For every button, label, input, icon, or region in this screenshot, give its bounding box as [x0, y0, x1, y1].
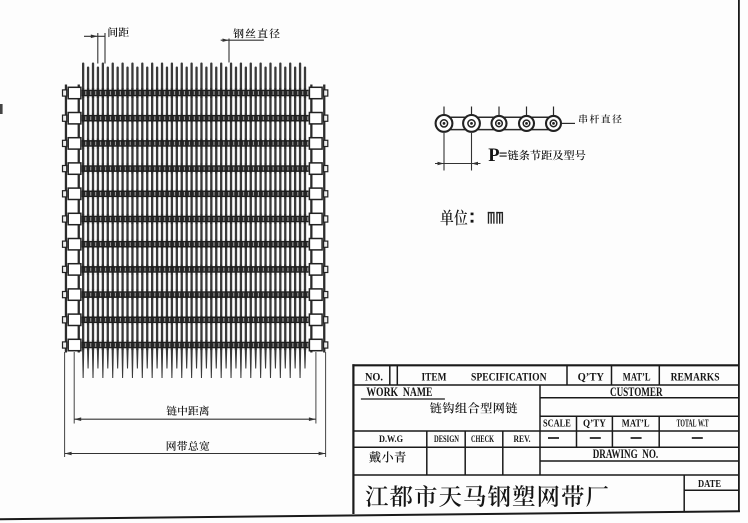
- svg-text:DESIGN: DESIGN: [434, 435, 459, 445]
- svg-text:REV.: REV.: [514, 435, 531, 445]
- svg-text:MAT’L: MAT’L: [623, 370, 651, 384]
- svg-text:D.W.G: D.W.G: [379, 435, 404, 445]
- svg-text:Q’TY: Q’TY: [583, 418, 606, 430]
- svg-text:TOTAL W.T: TOTAL W.T: [677, 418, 709, 430]
- svg-text:SCALE: SCALE: [543, 418, 571, 430]
- svg-text:=: =: [499, 147, 508, 164]
- svg-text:CUSTOMER: CUSTOMER: [610, 385, 663, 399]
- svg-text:REMARKS: REMARKS: [671, 370, 720, 384]
- svg-text:DATE: DATE: [698, 479, 721, 490]
- svg-text:CHECK: CHECK: [471, 435, 494, 445]
- svg-text:SPECIFICATION: SPECIFICATION: [471, 370, 547, 384]
- svg-text:ITEM: ITEM: [422, 370, 447, 384]
- svg-text:Q’TY: Q’TY: [578, 370, 605, 384]
- svg-text:DRAWING NO.: DRAWING NO.: [593, 447, 659, 461]
- svg-text:WORK NAME: WORK NAME: [366, 385, 432, 399]
- svg-text:MAT’L: MAT’L: [622, 418, 650, 430]
- svg-text:NO.: NO.: [365, 370, 383, 384]
